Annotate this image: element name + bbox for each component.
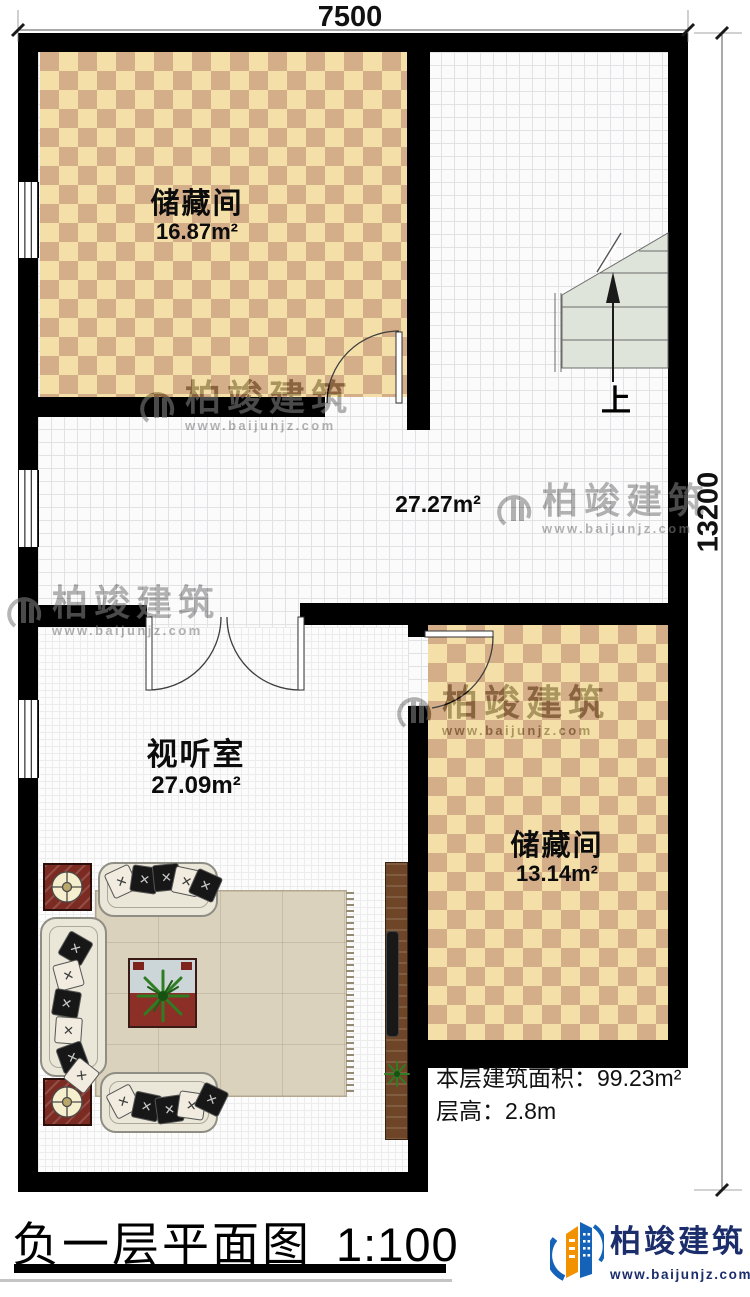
room-label-hall: 27.27m² — [395, 492, 481, 518]
coffee-table-corner — [181, 962, 192, 970]
rug-fringe — [346, 892, 354, 1092]
room-label-storage-right: 储藏间 13.14m² — [510, 830, 603, 887]
room-label-av-room: 视听室 27.09m² — [147, 738, 246, 800]
wall-av-right — [408, 706, 428, 1172]
wall-stub — [408, 625, 428, 637]
wall-right — [668, 33, 688, 1068]
window-left-1 — [18, 182, 39, 258]
room-area: 16.87m² — [150, 220, 243, 245]
room-area: 13.14m² — [510, 862, 603, 887]
brand-company: 柏竣建筑 — [610, 1216, 750, 1261]
side-table-lamp — [43, 863, 92, 911]
coffee-table-corner — [133, 962, 144, 970]
tv — [386, 931, 399, 1037]
brand-logo-icon — [550, 1216, 604, 1284]
room-name: 视听室 — [147, 738, 246, 773]
stairs-up-label: 上 — [601, 376, 631, 420]
room-label-storage-top: 储藏间 16.87m² — [150, 188, 243, 245]
wall-storage-top-bottom — [18, 397, 325, 417]
room-name: 储藏间 — [510, 830, 603, 862]
brand-logo: 柏竣建筑 www.baijunjz.com — [550, 1216, 750, 1284]
coffee-table — [128, 958, 197, 1028]
window-left-2 — [18, 470, 39, 547]
wall-hall-right — [300, 603, 688, 625]
wall-bottom — [18, 1172, 428, 1192]
wall-hall-left — [38, 605, 147, 627]
floor-plan-canvas: 柏竣建筑www.baijunjz.com 柏竣建筑www.baijunjz.co… — [0, 0, 750, 1297]
room-area: 27.09m² — [147, 773, 246, 800]
wall-top — [18, 33, 688, 52]
room-name: 储藏间 — [150, 188, 243, 220]
window-left-3 — [18, 700, 39, 778]
dimension-width: 7500 — [318, 1, 383, 34]
title-underline-secondary — [0, 1279, 452, 1282]
pillow — [51, 988, 82, 1019]
floor-area-note: 本层建筑面积：99.23m² — [436, 1062, 681, 1095]
room-area: 27.27m² — [395, 492, 481, 518]
dimension-height: 13200 — [693, 472, 726, 553]
title-underline — [14, 1264, 446, 1273]
plan-notes: 本层建筑面积：99.23m² 层高：2.8m — [436, 1062, 681, 1127]
doorway-floor — [408, 627, 428, 708]
floor-height-note: 层高：2.8m — [436, 1095, 681, 1128]
brand-website: www.baijunjz.com — [610, 1267, 750, 1282]
wall-storage-top-right — [407, 33, 430, 430]
